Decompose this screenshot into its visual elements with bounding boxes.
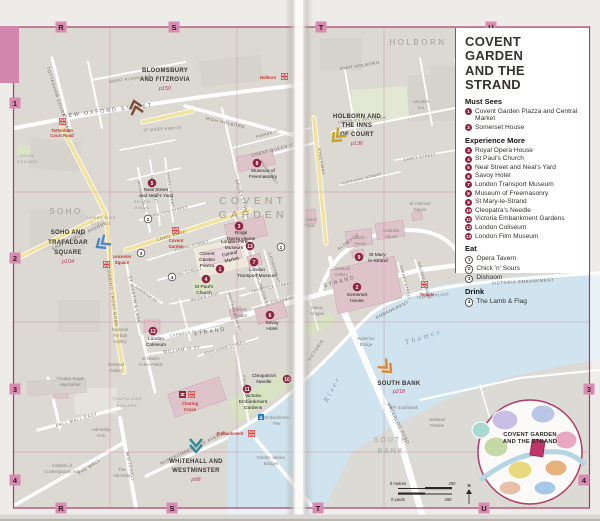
poi-label: Cleopatra's	[252, 373, 277, 379]
svg-text:1: 1	[280, 245, 283, 251]
poi-label: Courtauld	[332, 266, 351, 271]
venue-marker: 3	[137, 249, 145, 257]
chapter-thumb-tab	[0, 26, 19, 83]
sight-number-icon: 11	[465, 216, 472, 223]
poi-label: Australia	[383, 228, 400, 233]
legend-item: 10Cleopatra's Needle	[465, 207, 581, 215]
poi-label: Church	[196, 290, 212, 296]
venue-number-icon: 4	[465, 298, 473, 306]
legend-heading: Eat	[465, 244, 581, 253]
station-label: Court Road	[50, 133, 74, 138]
sight-marker: 6	[266, 311, 275, 320]
nav-label: HOLBORN AND	[333, 114, 381, 120]
poi-label: Royal	[235, 230, 247, 236]
tube-icon	[172, 227, 178, 233]
legend-item: 1Covent Garden Piazza and Central Market	[465, 108, 581, 124]
area-label: SOHO	[20, 154, 34, 158]
legend-heading: Must Sees	[465, 97, 581, 106]
area-label: DIALS	[135, 206, 150, 210]
poi-label: London	[249, 267, 265, 273]
sight-marker: 5	[148, 179, 157, 188]
poi-label: le-Strand	[368, 258, 388, 264]
area-label: COVENT	[219, 195, 287, 207]
poi-label: Freemasonry	[249, 174, 278, 180]
map-title: COVENT GARDEN AND THE STRAND	[465, 35, 581, 93]
sight-number-icon: 3	[465, 147, 472, 154]
poi-label: Gallery	[109, 368, 123, 373]
area-label: BANK	[377, 448, 404, 455]
poi-label: in-the-Fields	[139, 362, 163, 367]
nav-page: p150	[158, 86, 172, 92]
svg-text:R: R	[58, 504, 64, 513]
nav-label: WHITEHALL AND	[169, 459, 223, 465]
station-label: Leicester	[113, 254, 132, 259]
area-label: GARDEN	[219, 209, 288, 221]
svg-text:11: 11	[244, 387, 250, 393]
nav-page: p218	[392, 389, 406, 395]
poi-label: Museum of	[251, 168, 275, 174]
svg-text:U: U	[481, 504, 486, 513]
tube-icon	[421, 281, 427, 287]
sight-marker: 2	[353, 283, 362, 292]
poi-label: The	[118, 467, 126, 472]
poi-label: Coliseum	[146, 342, 166, 348]
sight-marker: 12	[149, 327, 158, 336]
nav-label: AND FITZROVIA	[140, 77, 191, 83]
sight-number-icon: 7	[465, 181, 472, 188]
legend-item: 5Neal Street and Neal's Yard	[465, 164, 581, 172]
poi-label: BFI Southbank	[390, 405, 419, 410]
svg-text:8: 8	[256, 161, 259, 167]
page-gutter	[285, 0, 313, 521]
svg-text:2: 2	[13, 254, 17, 263]
poi-label: Theatre	[430, 423, 445, 428]
poi-label: Danes	[414, 207, 426, 212]
poi-label: House	[350, 298, 364, 304]
nav-label: BLOOMSBURY	[142, 68, 188, 74]
poi-label: Museum	[225, 245, 243, 251]
poi-label: Transport Museum	[237, 273, 277, 279]
svg-text:5: 5	[151, 181, 154, 187]
poi-label: and Neal's Yard	[139, 193, 173, 199]
poi-label: Admiralty	[113, 473, 132, 478]
poi-label: Lincoln's	[413, 99, 430, 104]
station-label: Garden	[168, 244, 183, 249]
poi-label: National	[429, 417, 445, 422]
poi-label: Haymarket	[60, 382, 82, 387]
nav-label: THE INNS	[342, 123, 372, 129]
area-label: SQUARE	[17, 160, 38, 164]
poi-label: London	[148, 336, 164, 342]
area-label: SOUTH	[374, 437, 409, 444]
svg-text:4: 4	[171, 275, 174, 281]
poi-label: Institute of	[52, 463, 73, 468]
svg-text:N: N	[467, 483, 470, 488]
svg-text:9: 9	[358, 255, 361, 261]
nav-label: WESTMINSTER	[172, 468, 220, 474]
legend-heading: Experience More	[465, 136, 581, 145]
svg-text:0 yards: 0 yards	[391, 497, 405, 502]
nav-label: SQUARE	[54, 250, 81, 256]
legend-item: 13London Film Museum	[465, 233, 581, 241]
sight-number-icon: 4	[465, 156, 472, 163]
poi-label: St Paul's	[195, 284, 214, 290]
legend-item: 7London Transport Museum	[465, 181, 581, 189]
venue-number-icon: 2	[465, 265, 473, 273]
svg-text:3: 3	[587, 385, 591, 394]
legend-item: 4The Lamb & Flag	[465, 298, 581, 307]
poi-label: Gallery	[334, 272, 348, 277]
poi-label: St Martin-	[142, 356, 161, 361]
venue-number-icon: 3	[465, 275, 473, 283]
area-label: HOLBORN	[389, 38, 446, 47]
svg-text:13: 13	[247, 244, 253, 250]
legend-item: 9St Mary-le-Strand	[465, 198, 581, 206]
sight-number-icon: 13	[465, 233, 472, 240]
svg-text:1: 1	[13, 99, 17, 108]
svg-text:7: 7	[253, 260, 256, 266]
sight-marker: 11	[243, 385, 252, 394]
legend-item: 4St Paul's Church	[465, 155, 581, 163]
station-label: Cross	[184, 407, 197, 412]
legend-item: 2Chick 'n' Sours	[465, 265, 581, 274]
area-label: SOHO	[49, 207, 83, 216]
rail-icon	[179, 391, 186, 398]
svg-text:3: 3	[238, 224, 241, 230]
poi-label: Embankment	[239, 399, 268, 405]
station-label: Temple	[420, 292, 435, 297]
poi-label: Theatre	[233, 313, 248, 318]
legend-item: 12London Coliseum	[465, 224, 581, 232]
poi-label: House	[354, 241, 367, 246]
sight-number-icon: 8	[465, 190, 472, 197]
svg-text:R: R	[58, 23, 64, 32]
area-label: TRAFALGAR	[112, 397, 142, 401]
svg-text:3: 3	[140, 251, 143, 257]
svg-text:1: 1	[219, 267, 222, 273]
svg-text:4: 4	[205, 277, 208, 283]
legend-item: 11Victoria Embankment Gardens	[465, 215, 581, 223]
area-label: SQUARE	[117, 404, 138, 408]
area-label: SEVEN	[134, 200, 151, 204]
poi-label: Bush	[355, 235, 365, 240]
station-label: Covent	[169, 238, 184, 243]
sight-number-icon: 10	[465, 207, 472, 214]
legend-item: 2Somerset House	[465, 124, 581, 132]
area-label: CIRCUS	[91, 222, 110, 226]
street-label: Bridges	[264, 461, 279, 466]
nav-page: p68	[190, 477, 201, 483]
poi-label: St Mary-	[369, 252, 388, 258]
nav-page: p136	[350, 141, 364, 147]
svg-text:6: 6	[269, 313, 272, 319]
svg-text:2: 2	[147, 217, 150, 223]
sight-number-icon: 9	[465, 199, 472, 206]
sight-number-icon: 5	[465, 164, 472, 171]
sight-number-icon: 2	[465, 124, 472, 131]
poi-label: House	[385, 234, 398, 239]
sight-marker: 9	[355, 253, 364, 262]
station-label: Charing	[182, 401, 199, 406]
poi-label: Inn	[418, 105, 425, 110]
poi-label: St Clement	[409, 201, 431, 206]
sight-marker: 13	[246, 242, 255, 251]
svg-text:0 metres: 0 metres	[390, 481, 406, 486]
sight-marker: 4	[202, 275, 211, 284]
poi-label: Theatre Royal	[57, 376, 84, 381]
tube-icon	[248, 430, 254, 436]
station-label: Holborn	[260, 75, 277, 80]
svg-text:T: T	[319, 23, 324, 32]
poi-label: Piazza	[200, 263, 215, 269]
street-label: Waterloo	[357, 336, 375, 341]
inset-label: COVENT GARDEN	[503, 432, 557, 438]
svg-text:200: 200	[449, 481, 457, 486]
poi-label: Admiralty	[92, 427, 111, 432]
sight-marker: 1	[216, 265, 225, 274]
poi-label: Hotel	[266, 326, 277, 332]
venue-number-icon: 1	[465, 256, 473, 264]
legend-item: 6Savoy Hotel	[465, 172, 581, 180]
svg-text:12: 12	[150, 329, 156, 335]
svg-text:S: S	[171, 23, 176, 32]
legend-item: 8Museum of Freemasonry	[465, 190, 581, 198]
tube-icon	[188, 391, 194, 397]
poi-label: Needle	[256, 379, 272, 385]
nav-label: SOUTH BANK	[378, 381, 421, 387]
poi-label: Covent	[199, 251, 215, 257]
sight-number-icon: 6	[465, 173, 472, 180]
poi-label: Arch	[97, 433, 106, 438]
poi-label: Portrait	[113, 333, 128, 338]
sight-marker: 3	[235, 222, 244, 231]
map-key-panel: COVENT GARDEN AND THE STRAND Must Sees 1…	[455, 28, 589, 273]
legend-heading: Drink	[465, 287, 581, 296]
poi-label: London Film	[221, 239, 247, 245]
inset-label: AND THE STRAND	[503, 439, 557, 445]
svg-text:T: T	[316, 504, 321, 513]
pier-icon	[258, 414, 264, 420]
nav-label: SOHO AND	[51, 230, 86, 236]
svg-text:2: 2	[356, 285, 359, 291]
poi-label: Contemporary Arts	[44, 469, 80, 474]
poi-label: Pier	[273, 421, 281, 426]
poi-label: National	[112, 327, 128, 332]
nav-page: p104	[61, 259, 74, 265]
poi-label: Garden	[199, 257, 215, 263]
venue-marker: 4	[168, 273, 176, 281]
sight-marker: 8	[253, 159, 262, 168]
map-spread: NEW OXFORD STREET GREAT RUSSELL ST TOTTE…	[0, 0, 600, 521]
legend-item: 3Dishoom	[465, 274, 581, 283]
street-label: Golden Jubilee	[257, 455, 286, 460]
svg-text:200: 200	[445, 497, 453, 502]
tube-icon	[103, 261, 109, 267]
station-label: Embankment	[217, 431, 245, 436]
sight-marker: 7	[250, 258, 259, 267]
poi-label: Savoy	[265, 320, 279, 326]
svg-text:3: 3	[13, 385, 17, 394]
poi-label: Victoria	[245, 393, 261, 399]
poi-label: Somerset	[347, 292, 368, 298]
station-label: Square	[115, 260, 130, 265]
street-label: Bridge	[360, 342, 373, 347]
poi-label: Gallery	[113, 339, 127, 344]
venue-marker: 1	[277, 243, 285, 251]
poi-label: National	[108, 362, 124, 367]
sight-number-icon: 1	[465, 108, 472, 115]
legend-item: 3Royal Opera House	[465, 147, 581, 155]
svg-text:S: S	[169, 504, 174, 513]
poi-label: Gardens	[244, 405, 263, 411]
legend-item: 1Opera Tavern	[465, 255, 581, 264]
poi-label: Adelphi	[233, 307, 247, 312]
poi-label: Neal Street	[144, 187, 169, 193]
area-label: CAMBRIDGE	[86, 216, 116, 220]
tube-icon	[59, 118, 65, 124]
sight-number-icon: 12	[465, 224, 472, 231]
nav-label: TRAFALGAR	[48, 240, 88, 246]
venue-marker: 2	[144, 215, 152, 223]
